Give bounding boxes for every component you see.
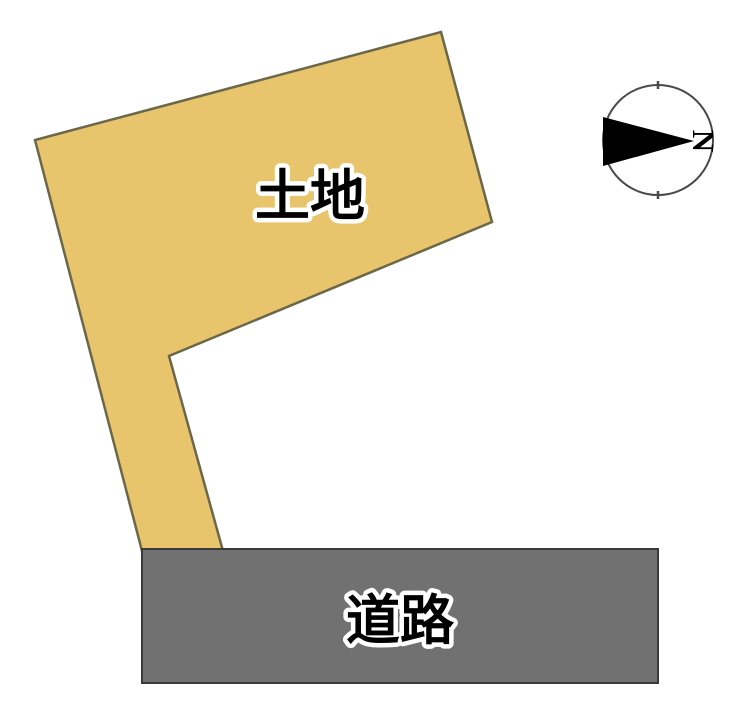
site-plan: 土地 道路 N [0,0,750,720]
compass-rose: N [603,81,721,199]
site-plan-canvas: 土地 道路 N [0,0,750,720]
compass-north-letter: N [686,130,721,152]
land-label: 土地 [255,165,365,227]
road-label: 道路 [346,591,455,651]
land-parcel-shape [35,32,492,551]
